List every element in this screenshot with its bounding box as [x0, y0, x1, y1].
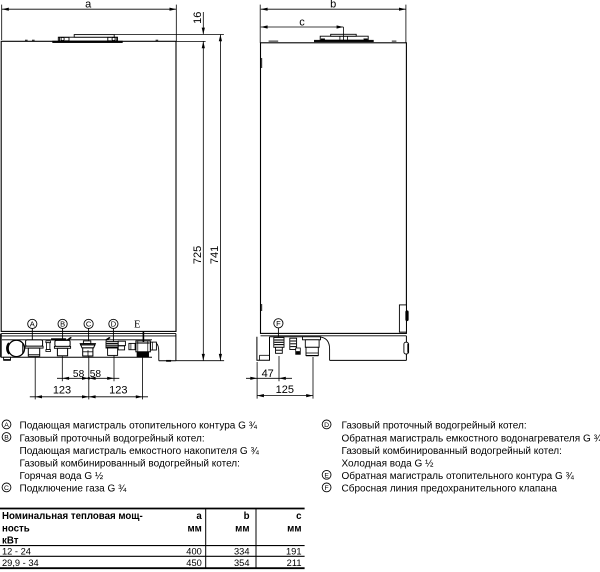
svg-text:Холодная вода G ½: Холодная вода G ½	[342, 459, 435, 470]
svg-text:29,9 - 34: 29,9 - 34	[2, 558, 39, 568]
svg-text:A: A	[30, 320, 35, 329]
svg-text:c: c	[299, 16, 305, 28]
svg-text:E: E	[134, 319, 140, 330]
svg-text:B: B	[4, 435, 9, 442]
svg-text:мм: мм	[187, 523, 201, 534]
svg-text:C: C	[4, 485, 9, 492]
svg-text:B: B	[60, 320, 65, 329]
svg-text:Номинальная тепловая мощ-: Номинальная тепловая мощ-	[2, 511, 143, 522]
svg-text:Подающая магистраль отопительн: Подающая магистраль отопительного контур…	[20, 421, 258, 432]
svg-text:334: 334	[234, 546, 250, 556]
svg-text:741: 741	[209, 246, 221, 264]
svg-text:Подающая магистраль емкостного: Подающая магистраль емкостного накопител…	[20, 446, 260, 457]
svg-text:211: 211	[287, 558, 302, 568]
svg-text:725: 725	[192, 246, 204, 264]
svg-text:F: F	[276, 319, 281, 328]
svg-text:400: 400	[186, 546, 202, 556]
svg-text:58: 58	[73, 369, 85, 380]
svg-text:Газовый комбинированный водогр: Газовый комбинированный водогрейный коте…	[342, 445, 562, 457]
svg-text:b: b	[330, 0, 336, 11]
svg-text:D: D	[111, 320, 117, 329]
svg-text:Горячая вода G ½: Горячая вода G ½	[20, 471, 104, 482]
svg-text:кВт: кВт	[2, 536, 19, 547]
svg-text:191: 191	[286, 546, 302, 556]
svg-text:Подключение газа G ¾: Подключение газа G ¾	[20, 484, 128, 495]
svg-text:Сбросная линия предохранительн: Сбросная линия предохранительного клапан…	[342, 483, 558, 495]
svg-text:450: 450	[186, 558, 202, 568]
svg-text:Обратная магистраль емкостного: Обратная магистраль емкостного водонагре…	[342, 432, 600, 444]
svg-text:c: c	[296, 511, 302, 522]
svg-text:a: a	[85, 0, 92, 11]
svg-text:мм: мм	[235, 523, 249, 534]
svg-text:C: C	[86, 320, 92, 329]
svg-text:Газовый проточный водогрейный: Газовый проточный водогрейный котел:	[342, 421, 527, 432]
svg-text:a: a	[196, 511, 202, 522]
svg-text:125: 125	[276, 384, 294, 396]
svg-text:Обратная магистраль отопительн: Обратная магистраль отопительного контур…	[342, 470, 575, 482]
svg-text:12 - 24: 12 - 24	[2, 546, 31, 556]
svg-text:F: F	[325, 485, 329, 492]
svg-text:A: A	[4, 422, 9, 429]
svg-text:16: 16	[192, 12, 204, 24]
svg-text:354: 354	[234, 558, 250, 568]
svg-text:b: b	[244, 511, 250, 522]
svg-text:Газовый комбинированный водогр: Газовый комбинированный водогрейный коте…	[20, 458, 240, 470]
svg-text:47: 47	[262, 368, 274, 380]
svg-text:D: D	[324, 422, 329, 429]
svg-text:ность: ность	[2, 523, 30, 534]
svg-text:123: 123	[109, 384, 127, 396]
svg-text:мм: мм	[287, 523, 301, 534]
svg-text:Газовый проточный водогрейный: Газовый проточный водогрейный котел:	[20, 433, 205, 444]
svg-text:58: 58	[90, 369, 102, 380]
svg-text:E: E	[324, 472, 329, 479]
svg-text:123: 123	[53, 384, 71, 396]
